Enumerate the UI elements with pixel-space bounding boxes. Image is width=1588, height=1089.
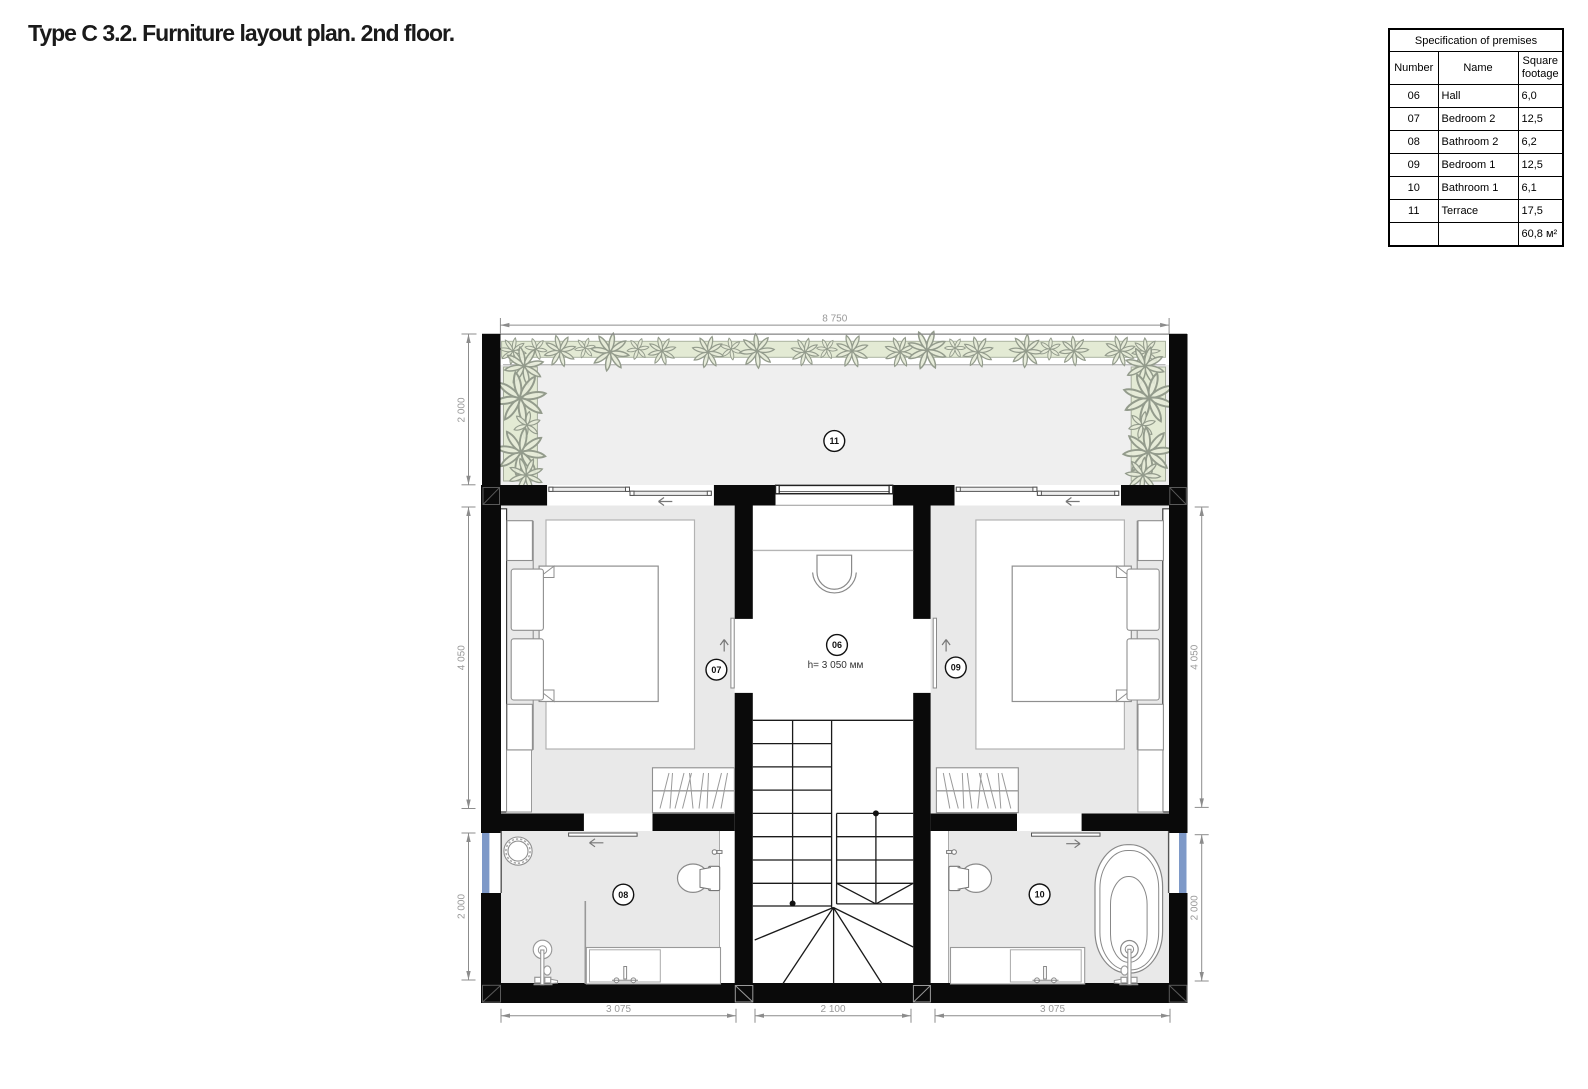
svg-text:3 075: 3 075 [1040, 1004, 1065, 1015]
svg-text:h= 3 050 мм: h= 3 050 мм [808, 660, 864, 671]
svg-text:07: 07 [711, 665, 721, 675]
svg-text:2 000: 2 000 [1190, 895, 1201, 920]
svg-text:4 050: 4 050 [1190, 644, 1201, 669]
svg-text:8 750: 8 750 [822, 314, 847, 325]
svg-text:06: 06 [832, 640, 842, 650]
svg-text:10: 10 [1035, 890, 1045, 900]
svg-text:2 100: 2 100 [820, 1004, 845, 1015]
svg-text:08: 08 [618, 890, 628, 900]
svg-text:09: 09 [951, 663, 961, 673]
svg-text:2 000: 2 000 [457, 894, 468, 919]
svg-text:4 050: 4 050 [457, 645, 468, 670]
svg-text:11: 11 [830, 436, 840, 446]
svg-text:3 075: 3 075 [606, 1004, 631, 1015]
svg-text:2 000: 2 000 [457, 397, 468, 422]
